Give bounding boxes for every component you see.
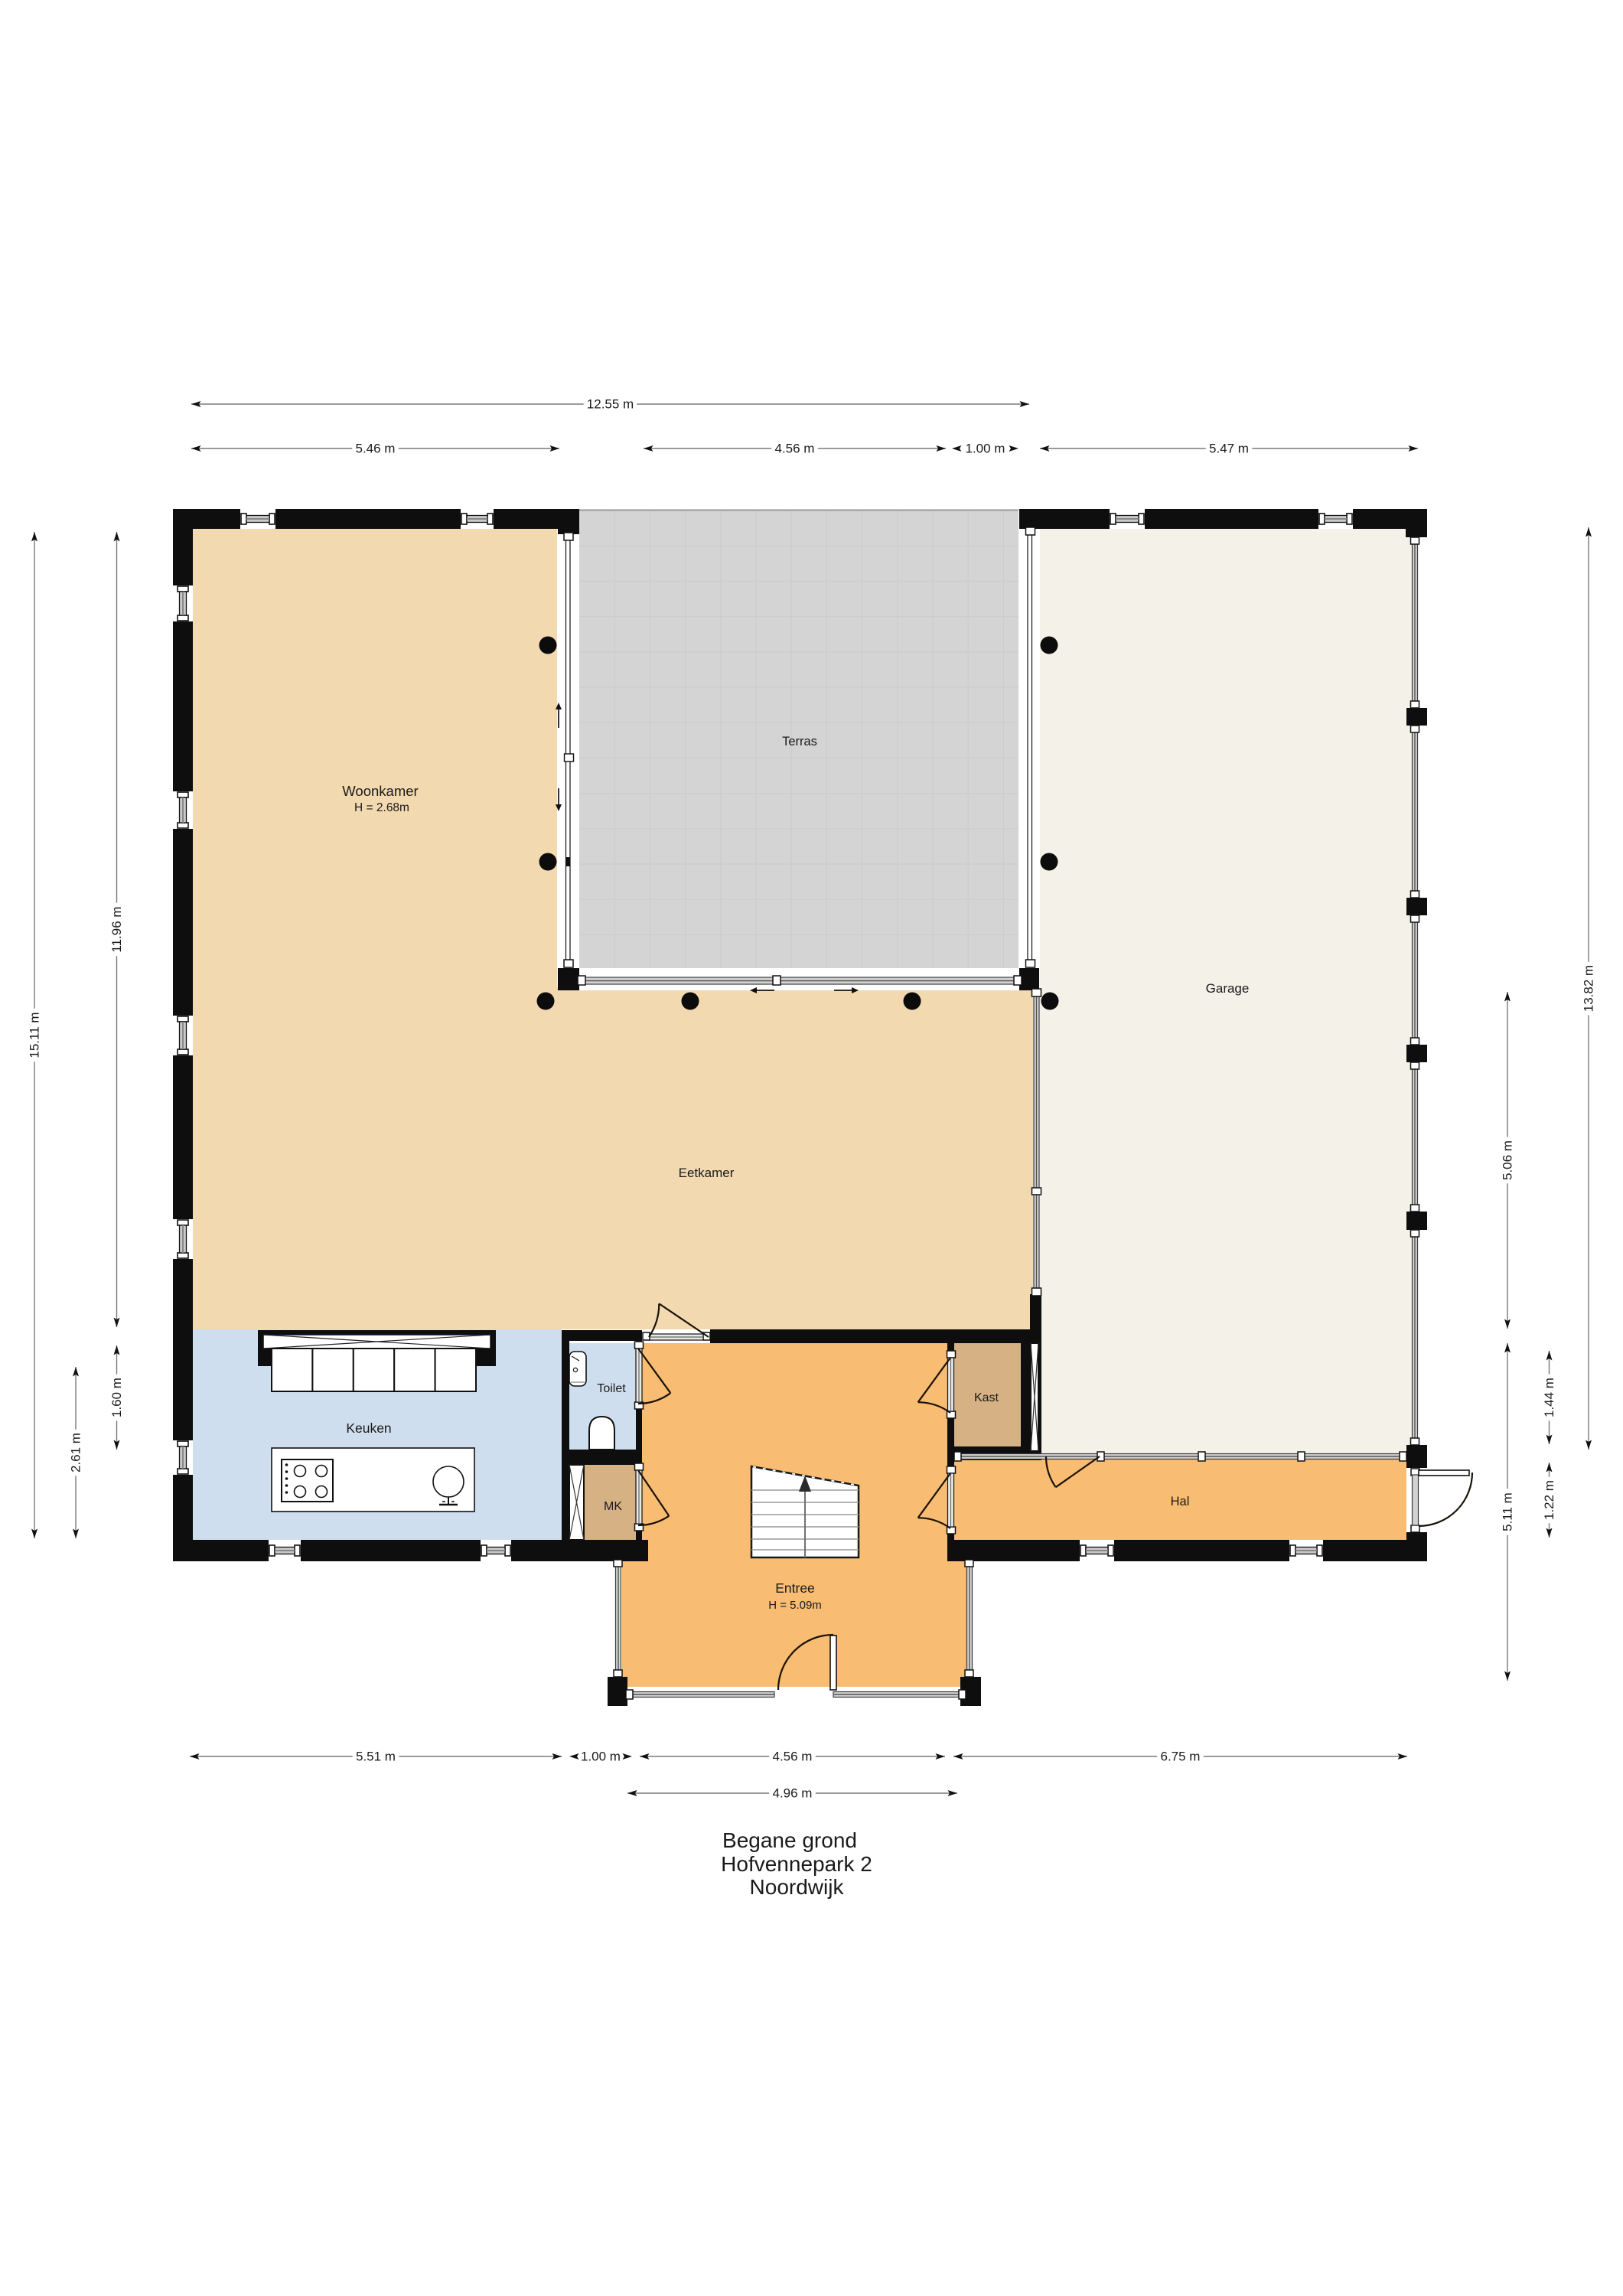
- svg-text:Kast: Kast: [974, 1391, 999, 1404]
- svg-text:1.00 m: 1.00 m: [966, 442, 1005, 456]
- svg-text:4.96 m: 4.96 m: [773, 1786, 813, 1801]
- svg-text:Woonkamer: Woonkamer: [342, 783, 418, 799]
- svg-text:13.82 m: 13.82 m: [1582, 965, 1596, 1012]
- svg-text:12.55 m: 12.55 m: [587, 397, 634, 412]
- svg-text:Noordwijk: Noordwijk: [750, 1875, 845, 1899]
- svg-text:1.22 m: 1.22 m: [1542, 1480, 1556, 1520]
- svg-text:Hofvennepark 2: Hofvennepark 2: [721, 1852, 872, 1876]
- svg-text:6.75 m: 6.75 m: [1161, 1750, 1201, 1764]
- svg-text:Hal: Hal: [1171, 1495, 1190, 1508]
- svg-text:1.44 m: 1.44 m: [1542, 1378, 1556, 1417]
- svg-text:Terras: Terras: [782, 735, 817, 748]
- svg-text:5.11 m: 5.11 m: [1501, 1492, 1515, 1531]
- svg-text:4.56 m: 4.56 m: [773, 1750, 813, 1764]
- svg-text:15.11 m: 15.11 m: [28, 1012, 42, 1058]
- svg-text:Toilet: Toilet: [597, 1382, 626, 1395]
- svg-text:H = 5.09m: H = 5.09m: [768, 1599, 822, 1612]
- svg-text:1.60 m: 1.60 m: [109, 1378, 124, 1417]
- svg-text:5.06 m: 5.06 m: [1501, 1140, 1515, 1180]
- svg-text:2.61 m: 2.61 m: [69, 1433, 83, 1473]
- svg-text:1.00 m: 1.00 m: [581, 1750, 621, 1764]
- svg-text:Begane grond: Begane grond: [722, 1828, 857, 1852]
- svg-text:11.96 m: 11.96 m: [109, 906, 124, 952]
- svg-text:Eetkamer: Eetkamer: [679, 1166, 735, 1180]
- svg-text:MK: MK: [604, 1500, 622, 1513]
- svg-text:Garage: Garage: [1206, 981, 1250, 996]
- svg-text:5.46 m: 5.46 m: [356, 442, 396, 456]
- svg-text:H = 2.68m: H = 2.68m: [354, 801, 409, 814]
- svg-text:Entree: Entree: [775, 1580, 815, 1596]
- svg-text:Keuken: Keuken: [346, 1420, 391, 1436]
- svg-text:5.47 m: 5.47 m: [1209, 442, 1249, 456]
- svg-text:5.51 m: 5.51 m: [356, 1750, 396, 1764]
- svg-text:4.56 m: 4.56 m: [775, 442, 815, 456]
